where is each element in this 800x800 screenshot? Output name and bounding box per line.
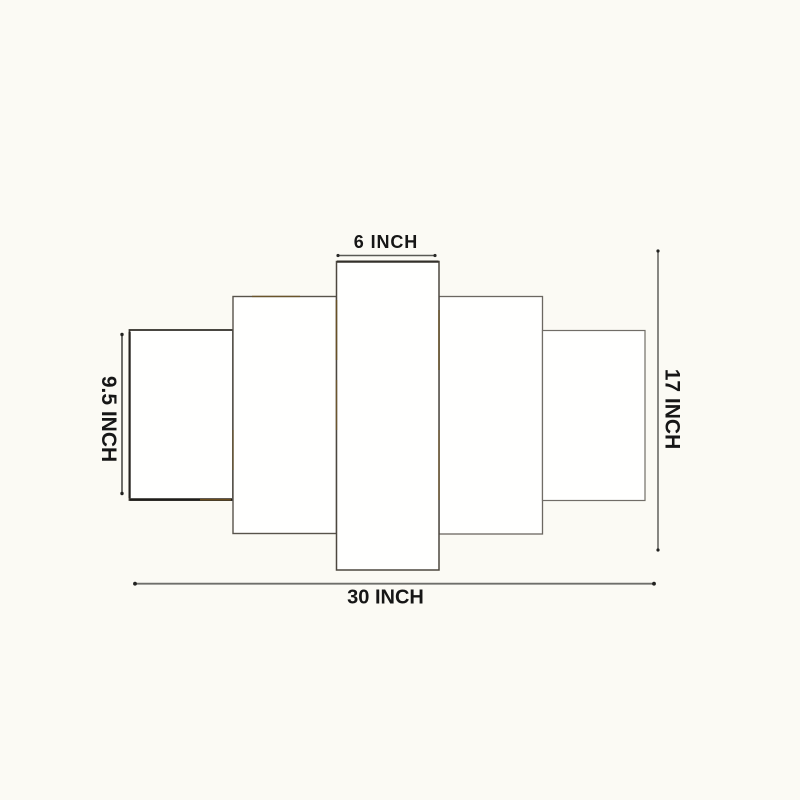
svg-text:6 INCH: 6 INCH: [354, 232, 418, 252]
svg-text:9.5 INCH: 9.5 INCH: [97, 376, 120, 462]
svg-text:17 INCH: 17 INCH: [661, 369, 684, 450]
svg-text:30 INCH: 30 INCH: [347, 587, 424, 609]
